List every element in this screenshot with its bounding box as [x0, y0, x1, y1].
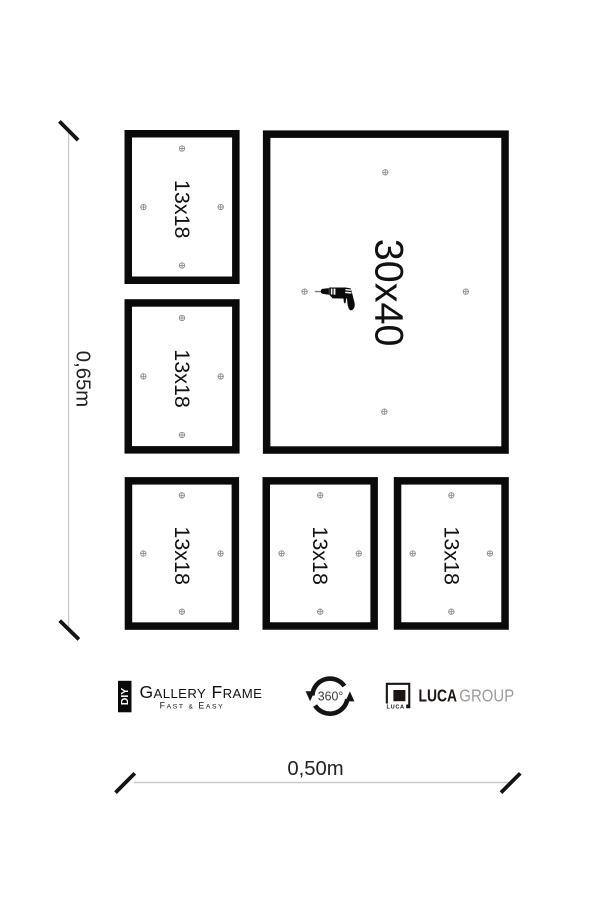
svg-text:30x40: 30x40 [366, 239, 410, 347]
svg-text:13x18: 13x18 [170, 526, 194, 585]
svg-text:GROUP: GROUP [459, 686, 514, 706]
svg-text:13x18: 13x18 [170, 180, 194, 239]
svg-text:13x18: 13x18 [308, 526, 332, 585]
svg-text:0,50m: 0,50m [287, 758, 343, 780]
svg-text:LUCA: LUCA [387, 704, 406, 710]
svg-text:LUCA: LUCA [419, 686, 458, 706]
svg-text:DIY: DIY [119, 688, 131, 706]
svg-text:13x18: 13x18 [439, 526, 463, 585]
svg-text:360°: 360° [318, 689, 344, 704]
svg-text:0,65m: 0,65m [72, 351, 94, 407]
svg-text:13x18: 13x18 [170, 349, 194, 408]
